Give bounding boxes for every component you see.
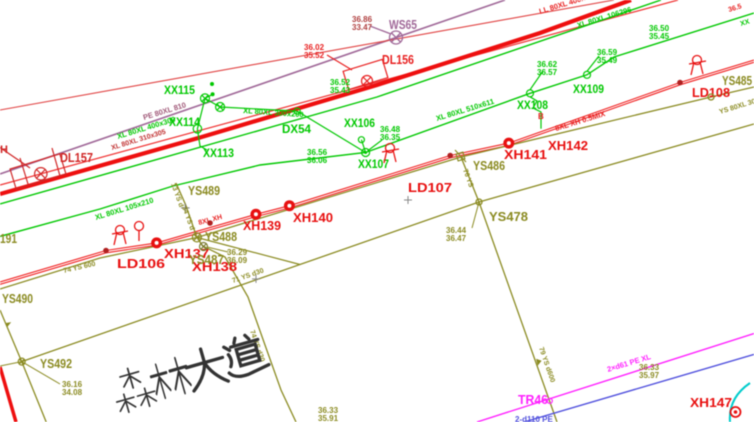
svg-text:LD106: LD106 [117,256,165,271]
svg-text:YS486: YS486 [473,159,505,173]
svg-text:YS478: YS478 [489,210,528,224]
svg-text:35.43: 35.43 [330,86,351,95]
svg-text:2-d110 PE: 2-d110 PE [515,415,553,422]
svg-text:191: 191 [0,232,17,246]
svg-text:DL156: DL156 [382,53,414,67]
svg-text:YS489: YS489 [188,184,220,198]
svg-text:YS488: YS488 [205,230,237,244]
svg-text:WS65: WS65 [389,18,417,32]
svg-text:36.06: 36.06 [307,156,328,165]
svg-text:34.08: 34.08 [62,388,83,397]
svg-text:XX109: XX109 [573,82,604,96]
svg-text:XX114: XX114 [169,115,200,129]
svg-text:35.97: 35.97 [639,371,660,380]
svg-text:35.52: 35.52 [304,51,325,60]
svg-text:XX113: XX113 [203,146,234,160]
svg-text:35.91: 35.91 [318,414,339,422]
svg-text:35.49: 35.49 [597,56,618,65]
svg-text:XX108: XX108 [517,98,548,112]
svg-text:B: B [538,112,544,121]
svg-text:TR46: TR46 [518,393,548,407]
svg-text:36.09: 36.09 [227,256,248,265]
svg-text:35.45: 35.45 [649,32,670,41]
svg-text:33.47: 33.47 [352,23,373,32]
svg-text:XX106: XX106 [344,116,375,130]
svg-text:XH141: XH141 [504,147,547,162]
svg-text:DX54: DX54 [282,122,311,136]
svg-text:LD107: LD107 [408,180,452,195]
svg-text:H: H [0,144,8,156]
svg-text:XH142: XH142 [548,138,588,153]
svg-text:36.35: 36.35 [380,133,401,142]
svg-text:XX115: XX115 [164,83,195,97]
svg-text:XH140: XH140 [293,210,333,225]
svg-text:YS490: YS490 [2,292,33,306]
svg-text:YS487: YS487 [189,253,224,267]
svg-text:36.47: 36.47 [446,234,467,243]
svg-text:YS485: YS485 [722,74,752,88]
svg-text:XH147: XH147 [690,395,732,410]
svg-text:36.57: 36.57 [537,68,558,77]
svg-text:DL157: DL157 [60,151,93,165]
svg-text:YS492: YS492 [40,357,72,371]
svg-text:XH139: XH139 [243,218,281,233]
